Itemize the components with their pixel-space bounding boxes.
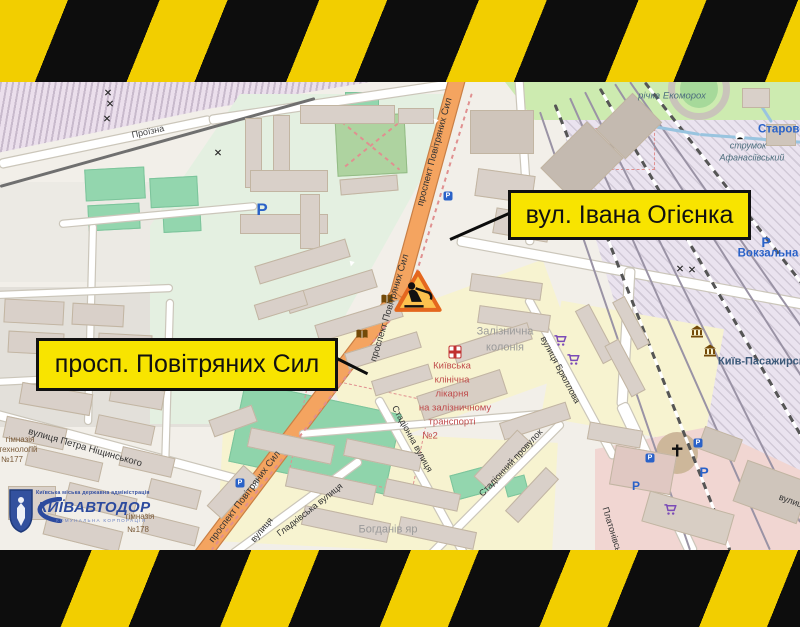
place-label: Афанасіївський (720, 154, 785, 163)
level-crossing-icon (104, 109, 111, 127)
place-label: гімназія (6, 436, 35, 444)
parking-icon: P (699, 464, 708, 480)
museum-icon (690, 325, 704, 344)
parking-square-icon: P (444, 192, 453, 201)
post-image: PPPPPPPPпроспект Повітряних Силпроспект … (0, 0, 800, 627)
parking-square-icon: P (236, 479, 245, 488)
building (300, 105, 395, 124)
supermarket-cart-icon (664, 503, 677, 521)
level-crossing-icon (677, 259, 684, 277)
parking-square-icon: P (694, 439, 703, 448)
kyivavtodor-logo: Київська міська державна адміністрація К… (6, 486, 178, 548)
building (470, 110, 534, 154)
callout-povitrianykh-label: просп. Повітряних Сил (55, 350, 319, 379)
hospital-cross-icon (449, 346, 462, 359)
callout-povitrianykh: просп. Повітряних Сил (36, 338, 338, 391)
place-label: Богданів яр (359, 525, 418, 536)
place-label: на залізничному (419, 403, 491, 413)
building (250, 170, 328, 192)
place-label: струмок (730, 142, 767, 151)
place-label: №177 (1, 456, 23, 464)
building (71, 303, 124, 328)
place-label: клінічна (435, 375, 470, 385)
logo-name: КИЇВАВТОДОР (38, 499, 151, 516)
place-label: колонія (486, 343, 524, 354)
map: PPPPPPPPпроспект Повітряних Силпроспект … (0, 82, 800, 550)
map-area (149, 176, 199, 208)
logo-admin-text: Київська міська державна адміністрація (36, 490, 150, 496)
callout-ogiienka-label: вул. Івана Огієнка (526, 201, 734, 230)
building (3, 298, 64, 325)
building (742, 88, 770, 108)
place-label: лікарня (436, 389, 469, 399)
parking-icon: P (632, 479, 640, 493)
place-label: технологій (0, 446, 37, 454)
map-area (84, 166, 146, 201)
building (300, 194, 320, 249)
transit-label: Київ-Пасажирський (718, 357, 800, 368)
place-label: Київська (433, 361, 471, 371)
hazard-stripe-top (0, 0, 800, 82)
museum-icon (703, 344, 717, 363)
level-crossing-icon (689, 260, 696, 278)
street-label: Проїзна (131, 124, 165, 140)
place-label: №2 (422, 431, 437, 441)
level-crossing-icon (215, 143, 222, 161)
callout-ogiienka: вул. Івана Огієнка (508, 190, 751, 240)
place-label: транспорті (429, 417, 476, 427)
place-label: Залізнична (477, 327, 534, 338)
church-cross-icon (670, 444, 684, 463)
logo-subtitle: КОМУНАЛЬНА КОРПОРАЦІЯ (56, 518, 146, 523)
parking-square-icon: P (646, 454, 655, 463)
hazard-stripe-bottom (0, 550, 800, 627)
library-book-icon (356, 328, 369, 346)
place-label: річка Екоморох (638, 91, 706, 101)
supermarket-cart-icon (567, 353, 580, 371)
transit-label: Старовокзальна (758, 124, 800, 136)
parking-icon: P (256, 200, 267, 220)
transit-label: Вокзальна (738, 248, 799, 260)
